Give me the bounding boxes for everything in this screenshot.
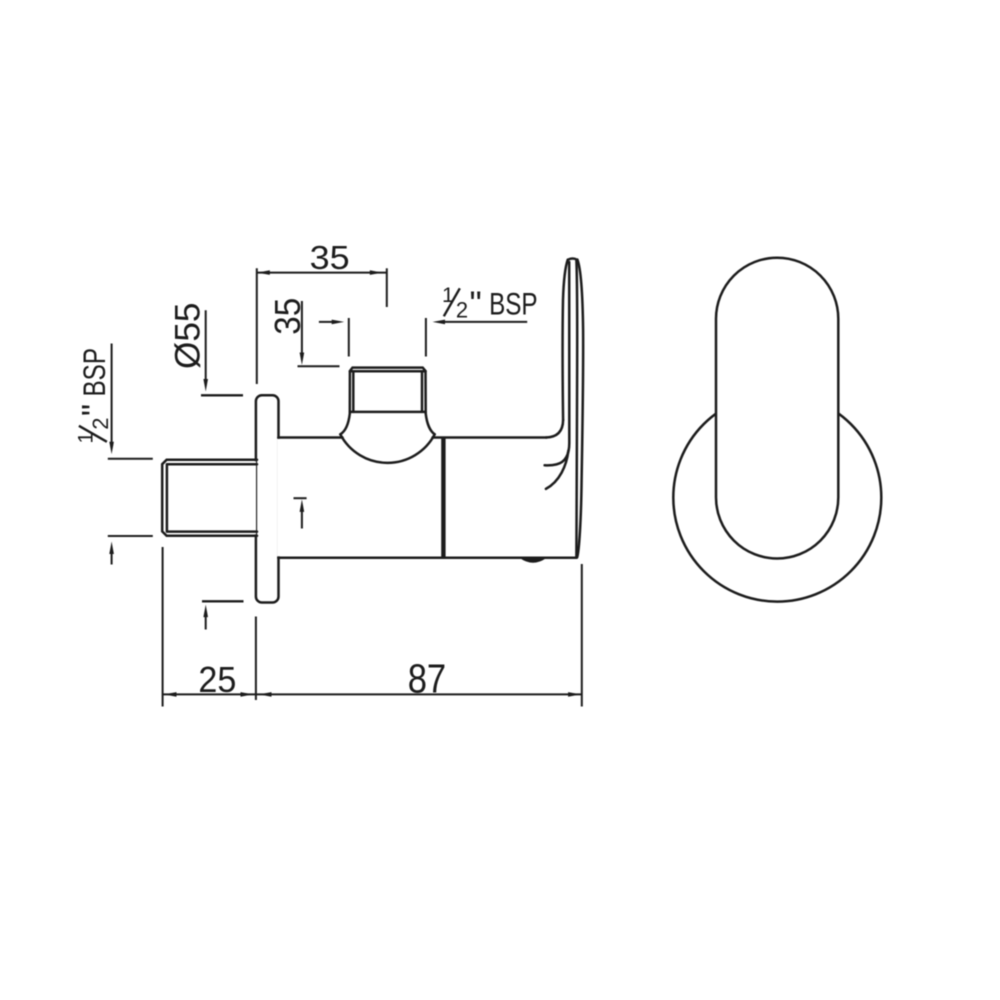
svg-text:Ø55: Ø55	[167, 303, 207, 370]
svg-text:": "	[75, 404, 113, 416]
svg-text:25: 25	[198, 659, 236, 700]
svg-text:": "	[470, 285, 482, 323]
svg-text:2: 2	[456, 297, 468, 322]
svg-text:35: 35	[310, 240, 350, 277]
svg-text:87: 87	[408, 655, 447, 701]
svg-text:2: 2	[88, 417, 113, 429]
svg-text:BSP: BSP	[489, 286, 538, 321]
svg-text:35: 35	[267, 298, 308, 335]
svg-text:BSP: BSP	[77, 348, 112, 397]
